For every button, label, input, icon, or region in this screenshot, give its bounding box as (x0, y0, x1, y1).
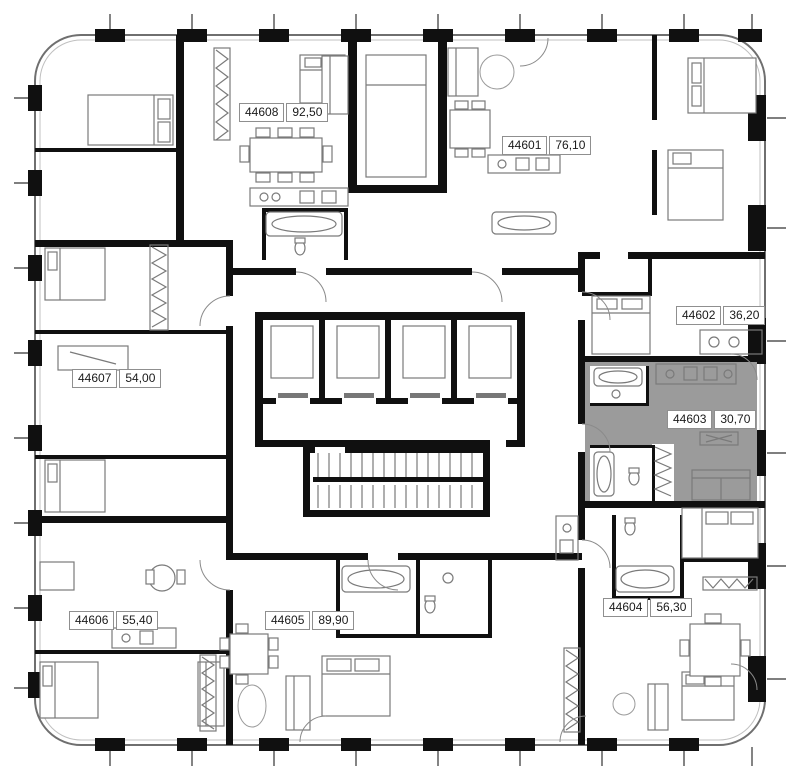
unit-area: 56,30 (650, 598, 692, 617)
unit-44606-region[interactable] (35, 523, 230, 745)
unit-44601-region[interactable] (445, 35, 765, 250)
unit-area: 55,40 (116, 611, 158, 630)
unit-regions (35, 35, 765, 745)
floor-plan-drawing (0, 0, 800, 779)
floor-plan: 4460892,50 4460176,10 4460236,20 4460330… (0, 0, 800, 779)
unit-id: 44607 (72, 369, 117, 388)
unit-id: 44602 (676, 306, 721, 325)
stairwell (303, 447, 490, 517)
unit-label-44607[interactable]: 4460754,00 (72, 369, 161, 388)
unit-id: 44608 (239, 103, 284, 122)
unit-44604-region[interactable] (582, 505, 765, 745)
unit-44603-region[interactable] (582, 360, 762, 505)
unit-area: 54,00 (119, 369, 161, 388)
unit-44605-region[interactable] (230, 560, 582, 745)
service-shaft (366, 55, 426, 177)
unit-area: 92,50 (286, 103, 328, 122)
unit-id: 44605 (265, 611, 310, 630)
unit-id: 44606 (69, 611, 114, 630)
unit-label-44606[interactable]: 4460655,40 (69, 611, 158, 630)
unit-44608-region[interactable] (35, 35, 345, 265)
unit-label-44601[interactable]: 4460176,10 (502, 136, 591, 155)
unit-area: 30,70 (714, 410, 756, 429)
unit-id: 44601 (502, 136, 547, 155)
unit-label-44604[interactable]: 4460456,30 (603, 598, 692, 617)
unit-label-44603[interactable]: 4460330,70 (667, 410, 756, 429)
unit-area: 89,90 (312, 611, 354, 630)
unit-area: 36,20 (723, 306, 765, 325)
elevator-core (255, 312, 525, 447)
unit-label-44605[interactable]: 4460589,90 (265, 611, 354, 630)
unit-area: 76,10 (549, 136, 591, 155)
unit-label-44602[interactable]: 4460236,20 (676, 306, 765, 325)
unit-id: 44604 (603, 598, 648, 617)
unit-label-44608[interactable]: 4460892,50 (239, 103, 328, 122)
unit-id: 44603 (667, 410, 712, 429)
